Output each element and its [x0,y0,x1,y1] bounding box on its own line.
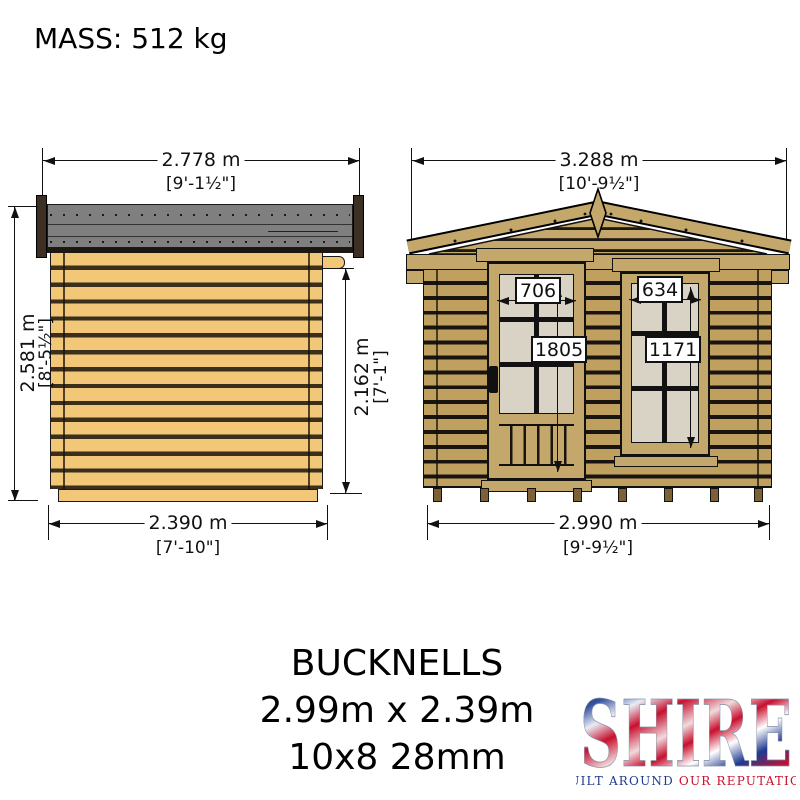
dim-arrow [498,297,509,305]
dim-arrow [775,157,786,165]
window-sill [614,456,718,467]
dim-imperial: [9'-1½"] [162,174,240,194]
front-eave-board [406,254,790,270]
side-bargeboard-left [36,195,47,258]
window-lintel [612,258,720,272]
foundation-foot [573,488,582,502]
dim-arrow [428,520,439,528]
door-lintel [476,248,594,262]
dim-imperial: [7'-1"] [371,350,391,404]
door-handle [489,366,498,393]
roof-nail-row [50,214,350,216]
foundation-foot [433,488,442,502]
dim-arrow [687,437,695,448]
dim-arrow [11,207,19,218]
product-name: BUCKNELLS [197,640,597,687]
side-floor-base [58,489,318,502]
shire-logo-tagline: BUILT AROUND OUR REPUTATION [576,774,796,788]
foundation-foot [754,488,763,502]
tagline-part-2: OUR REPUTATION [679,774,796,788]
dim-arrow [413,157,424,165]
dim-arrow [342,269,350,280]
dim-metric: 2.390 m [145,512,232,534]
mass-label: MASS: 512 kg [34,22,228,55]
dim-arrow [49,520,60,528]
front-corner-joint-right [757,270,759,488]
tagline-part-1: BUILT AROUND [576,774,679,788]
product-dimensions: 2.99m x 2.39m [197,687,597,734]
side-bargeboard-right [353,195,364,258]
dim-arrow [554,461,562,472]
window-width-label: 634 [637,276,683,303]
dim-metric: 2.162 m [351,338,373,417]
foundation-foot [710,488,719,502]
foundation-foot [618,488,627,502]
side-roof [47,204,353,248]
front-log-wall [423,270,772,488]
door-lower-boards [499,424,574,466]
window-muntin [662,283,667,443]
dim-arrow [565,297,576,305]
dim-imperial: [8'-5½"] [36,318,56,388]
side-log-wall [50,253,323,489]
dim-arrow [342,482,350,493]
product-spec: 10x8 28mm [197,734,597,781]
dim-arrow [758,520,769,528]
shire-logo: SHIRE BUILT AROUND OUR REPUTATION [576,686,796,792]
window-height-label: 1171 [645,336,701,363]
front-eave-end-right [770,270,789,284]
dim-arrow [687,288,695,299]
shire-logo-wordmark: SHIRE [580,686,792,788]
front-eave-end-left [406,270,424,284]
window-muntin [631,386,699,391]
dim-metric: 2.990 m [555,512,642,534]
dim-imperial: [9'-9½"] [559,538,637,558]
dim-arrow [316,520,327,528]
dim-arrow [44,157,55,165]
product-summary: BUCKNELLS 2.99m x 2.39m 10x8 28mm [197,640,597,781]
side-corner-joint-right [308,253,310,489]
door-width-label: 706 [515,277,561,304]
foundation-foot [480,488,489,502]
door-height-label: 1805 [531,336,587,363]
foundation-foot [527,488,536,502]
roof-nail-row [50,241,350,243]
dim-arrow [11,490,19,501]
dim-metric: 3.288 m [556,149,643,171]
dim-metric: 2.778 m [158,149,245,171]
dim-arrow [348,157,359,165]
dim-imperial: [7'-10"] [152,538,224,558]
drawing-canvas: MASS: 512 kg 2.778 m [9'-1½"] [0,0,800,800]
front-corner-joint-left [436,270,438,488]
door-muntin [499,317,574,322]
side-corner-joint-left [63,253,65,489]
foundation-foot [664,488,673,502]
